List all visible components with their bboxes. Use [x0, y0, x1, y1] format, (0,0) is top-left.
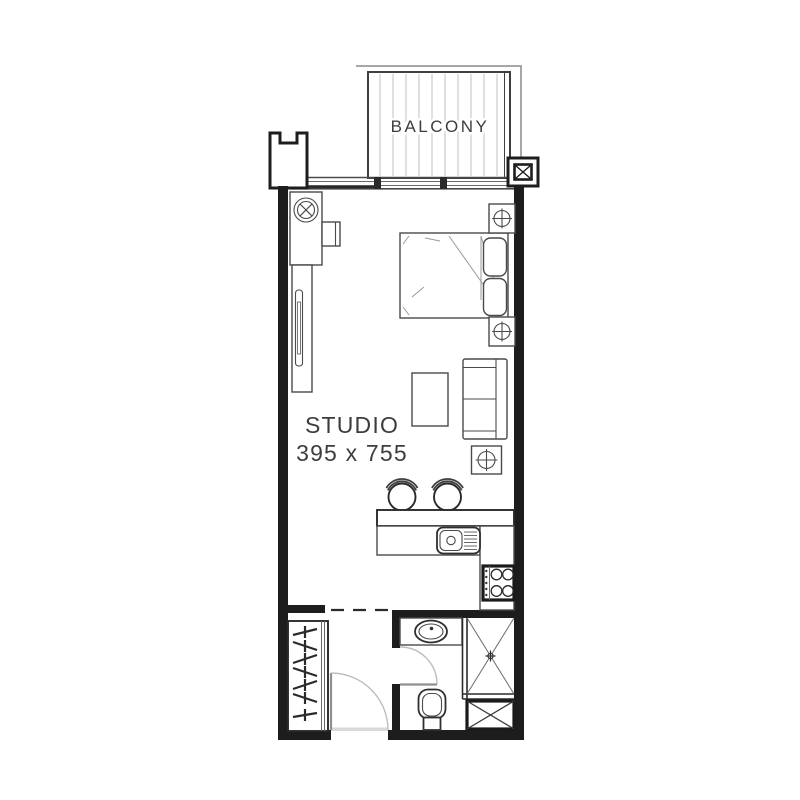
stove-hob: [483, 566, 514, 600]
kitchen-bar-counter: [377, 510, 514, 526]
wall-closet-stub: [278, 605, 325, 613]
ceiling-fixture-x-circle: [294, 198, 318, 222]
window-mullion-left: [374, 177, 381, 189]
wall-bathroom-left-lower: [392, 684, 400, 730]
shower-drain: [486, 651, 496, 662]
bathroom-vanity: [400, 618, 462, 645]
side-table-cross: [472, 446, 502, 474]
wall-bathroom-left-upper: [392, 618, 400, 648]
unit-side-box: [322, 222, 340, 246]
double-bed: [400, 233, 508, 318]
shaft-x-box: [508, 158, 538, 186]
wall-bathroom-top: [392, 610, 514, 618]
floor-plan-drawing: BALCONY: [0, 0, 800, 800]
wall-right: [514, 183, 524, 740]
toilet: [419, 690, 446, 731]
bathroom-door: [400, 647, 437, 685]
bar-stool-left: [386, 479, 417, 511]
floor-plan-canvas: BALCONY: [0, 0, 800, 800]
utility-x-box: [467, 701, 514, 729]
wall-left: [278, 186, 288, 740]
notched-pillar: [270, 133, 307, 188]
entry-threshold: [331, 728, 388, 732]
wall-bottom-right: [388, 730, 524, 740]
room-label: STUDIO 395 x 755: [296, 412, 408, 466]
room-name: STUDIO: [305, 412, 399, 438]
bathroom: [400, 618, 514, 730]
basin-faucet-dot: [430, 627, 434, 631]
balcony-label: BALCONY: [391, 117, 490, 136]
entry-door: [331, 673, 388, 731]
shower-x: [463, 618, 515, 699]
kitchen-sink: [437, 528, 480, 554]
bar-stool-right: [432, 479, 463, 511]
nightstand-top: [489, 204, 515, 233]
balcony: BALCONY: [356, 66, 521, 178]
room-dimensions: 395 x 755: [296, 440, 408, 466]
coffee-table: [412, 373, 448, 426]
hanger-closet: [288, 621, 328, 731]
sofa: [463, 359, 507, 439]
pillow-top: [484, 238, 507, 276]
nightstand-bottom: [489, 317, 515, 346]
sliding-panel: [292, 265, 312, 392]
wardrobe-unit: [290, 192, 340, 265]
window-mullion-right: [440, 177, 447, 189]
pillow-bottom: [484, 279, 507, 316]
